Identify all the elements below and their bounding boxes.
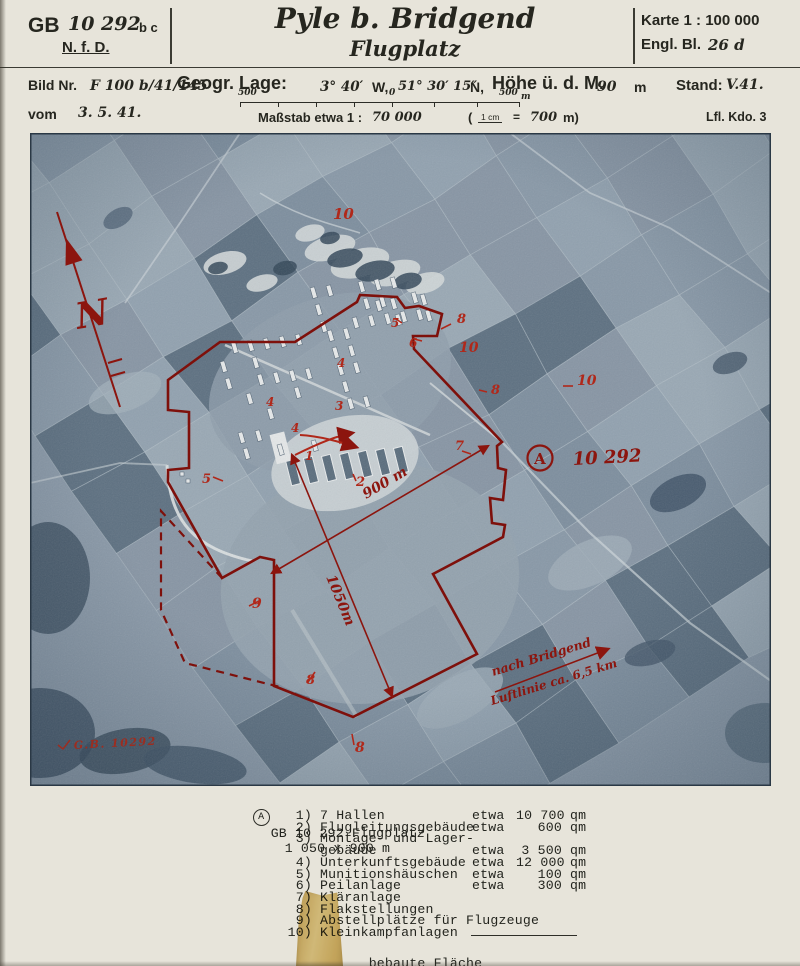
- scalebar-unit: m: [521, 92, 531, 102]
- site-number: 10 292: [572, 445, 642, 470]
- feature-marker: 6: [409, 336, 418, 350]
- legend-total-rule: [471, 935, 577, 936]
- lfl-kdo: Lfl. Kdo. 3: [706, 110, 766, 124]
- vom-label: vom: [28, 106, 57, 122]
- header-divider-right: [633, 8, 635, 64]
- org-code: GB: [28, 14, 60, 38]
- hoehe-value: 90: [597, 79, 616, 95]
- feature-marker: 4: [291, 421, 299, 435]
- vom-value: 3. 5. 41.: [78, 105, 141, 121]
- scalebar-left-label: 500: [238, 88, 257, 98]
- header-divider-left: [170, 8, 172, 64]
- geo-lon: 3° 40′: [320, 79, 363, 95]
- feature-marker: 1: [305, 449, 313, 463]
- feature-marker: 4: [266, 395, 274, 409]
- feature-marker: 10: [333, 205, 354, 223]
- feature-marker: 10: [577, 373, 597, 389]
- bild-nr-label: Bild Nr.: [28, 77, 77, 93]
- geo-lat: 51° 30′ 15″: [398, 79, 477, 94]
- cm-close: m): [563, 110, 579, 125]
- hoehe-unit: m: [634, 79, 646, 95]
- recon-document-sheet: GB 10 292 b c N. f. D. Pyle b. Bridgend …: [0, 0, 800, 966]
- feature-marker: 8: [457, 312, 466, 327]
- map-scale-ref: Karte 1 : 100 000: [641, 12, 759, 29]
- cm-eq: =: [513, 110, 520, 124]
- scalebar-zero-label: 0: [389, 88, 395, 98]
- massstab-label: Maßstab etwa 1 :: [258, 110, 362, 125]
- page-edge-left: [0, 0, 6, 966]
- feature-marker: 10: [459, 340, 479, 356]
- feature-marker: 3: [335, 399, 343, 413]
- engl-bl-value: 26 d: [708, 36, 745, 54]
- feature-marker: 8: [355, 740, 365, 756]
- legend-site-marker: A: [253, 809, 270, 826]
- ref-suffix: b c: [139, 20, 158, 35]
- nfd-classification: N. f. D.: [62, 39, 110, 56]
- feature-marker: 2: [355, 475, 365, 490]
- massstab-value: 70 000: [372, 110, 422, 125]
- feature-marker: 5: [391, 316, 399, 330]
- aerial-photo: 900 m1050mNnach BridgendLuftlinie ca. 6,…: [30, 133, 771, 786]
- geo-lat-dir: N,: [470, 79, 484, 95]
- stand-label: Stand:: [676, 77, 723, 94]
- site-circle-letter: A: [533, 450, 546, 468]
- geogr-label: Geogr. Lage:: [177, 73, 287, 94]
- engl-bl-label: Engl. Bl.: [641, 36, 701, 53]
- cm-open: (: [468, 110, 472, 125]
- cm-value: 700: [530, 110, 557, 125]
- geo-lon-dir: W,: [372, 79, 388, 95]
- feature-marker: 5: [202, 472, 211, 487]
- page-edge-bottom: [0, 961, 800, 966]
- stand-value: V.41.: [726, 77, 764, 93]
- feature-marker: 8: [491, 383, 500, 398]
- scalebar-right-label: 500: [499, 88, 518, 98]
- ref-number: 10 292: [68, 13, 141, 35]
- scale-bar: [240, 102, 520, 109]
- header-rule: [0, 67, 800, 68]
- cm-bar: 1 cm: [478, 112, 502, 123]
- page-subtitle: Flugplatz: [250, 36, 560, 61]
- feature-marker: 4: [337, 356, 345, 370]
- tape-strip: [296, 891, 343, 966]
- aerial-photo-canvas: 900 m1050mNnach BridgendLuftlinie ca. 6,…: [30, 133, 771, 786]
- page-title: Pyle b. Bridgend: [250, 2, 560, 35]
